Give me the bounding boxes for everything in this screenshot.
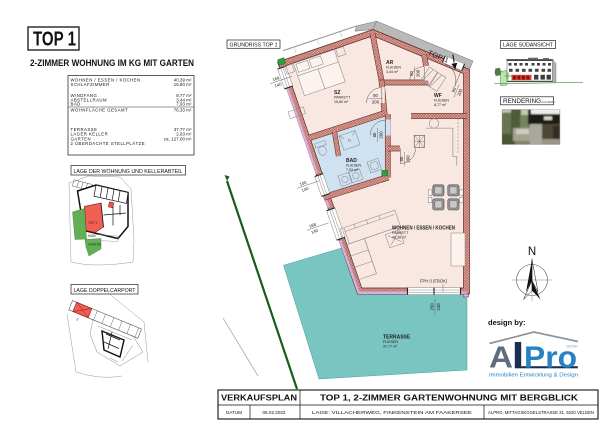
svg-text:(UNVERB.): (UNVERB.)	[542, 100, 555, 104]
svg-text:37,77 m²: 37,77 m²	[383, 344, 398, 348]
svg-text:TOP 1: TOP 1	[33, 29, 76, 51]
svg-text:LAGE: VILLACHERWEG, FINKENSTEI: LAGE: VILLACHERWEG, FINKENSTEIN AM FAAKE…	[312, 410, 472, 415]
svg-text:A: A	[489, 340, 513, 375]
svg-text:N: N	[528, 246, 536, 258]
svg-text:250: 250	[430, 303, 435, 311]
svg-text:GRUNDRISS TOP 1: GRUNDRISS TOP 1	[230, 42, 278, 48]
svg-text:230: 230	[436, 303, 441, 311]
svg-text:80: 80	[373, 93, 378, 98]
svg-text:RENDERING: RENDERING	[503, 98, 541, 105]
svg-text:LAGE DER WOHNUNG UND KELLERABT: LAGE DER WOHNUNG UND KELLERABTEIL	[74, 169, 183, 175]
svg-text:40,38 m²: 40,38 m²	[392, 235, 407, 239]
svg-text:VERKAUFSPLAN: VERKAUFSPLAN	[221, 394, 297, 403]
svg-text:FPH 0 (FBOK): FPH 0 (FBOK)	[420, 279, 448, 284]
svg-text:80: 80	[409, 71, 414, 76]
svg-text:7,93 m²: 7,93 m²	[346, 168, 359, 172]
svg-text:06.02.2023: 06.02.2023	[263, 410, 286, 415]
svg-text:GARTEN: GARTEN	[88, 243, 102, 247]
svg-text:7,93 m²: 7,93 m²	[176, 101, 192, 106]
svg-text:TERR.: TERR.	[88, 234, 97, 238]
svg-text:2 ÜBERDACHTE STELLPLÄTZE: 2 ÜBERDACHTE STELLPLÄTZE	[71, 141, 146, 146]
svg-text:8,77 m²: 8,77 m²	[434, 103, 447, 107]
svg-text:80: 80	[399, 156, 404, 161]
svg-text:SCHLAFZIMMER: SCHLAFZIMMER	[71, 82, 110, 87]
svg-text:BAD: BAD	[71, 101, 81, 106]
svg-text:200: 200	[416, 69, 421, 77]
svg-text:15,80 m²: 15,80 m²	[334, 100, 349, 104]
svg-text:200: 200	[372, 100, 380, 105]
svg-text:DATUM: DATUM	[226, 410, 242, 415]
svg-text:80: 80	[372, 132, 377, 137]
svg-text:TOP 1, 2-ZIMMER GARTENWOHNUNG: TOP 1, 2-ZIMMER GARTENWOHNUNG MIT BERGBL…	[320, 394, 578, 403]
svg-text:LAGE DOPPELCARPORT: LAGE DOPPELCARPORT	[74, 288, 137, 294]
svg-text:200: 200	[406, 155, 411, 163]
svg-text:LAGE SÜDANSICHT: LAGE SÜDANSICHT	[503, 42, 554, 49]
svg-text:15,80 m²: 15,80 m²	[174, 82, 192, 87]
svg-text:design by:: design by:	[488, 318, 526, 327]
svg-text:2-ZIMMER WOHNUNG IM KG MIT GAR: 2-ZIMMER WOHNUNG IM KG MIT GARTEN	[30, 58, 194, 68]
svg-text:ca. 127,00 m²: ca. 127,00 m²	[164, 136, 192, 141]
svg-text:WOHNFLÄCHE GESAMT: WOHNFLÄCHE GESAMT	[71, 107, 129, 112]
svg-text:200: 200	[379, 131, 384, 139]
svg-text:76,33 m²: 76,33 m²	[174, 107, 192, 112]
svg-text:3,44 m²: 3,44 m²	[386, 70, 399, 74]
svg-text:Immobilien Entwicklung & Desig: Immobilien Entwicklung & Design	[489, 373, 578, 379]
svg-text:ALPRO, MITTAGSKOGELSTRASSE 31,: ALPRO, MITTAGSKOGELSTRASSE 31, 9220 VELD…	[488, 410, 594, 415]
svg-text:TOP 1: TOP 1	[88, 221, 97, 225]
svg-text:GmbH: GmbH	[566, 344, 578, 349]
